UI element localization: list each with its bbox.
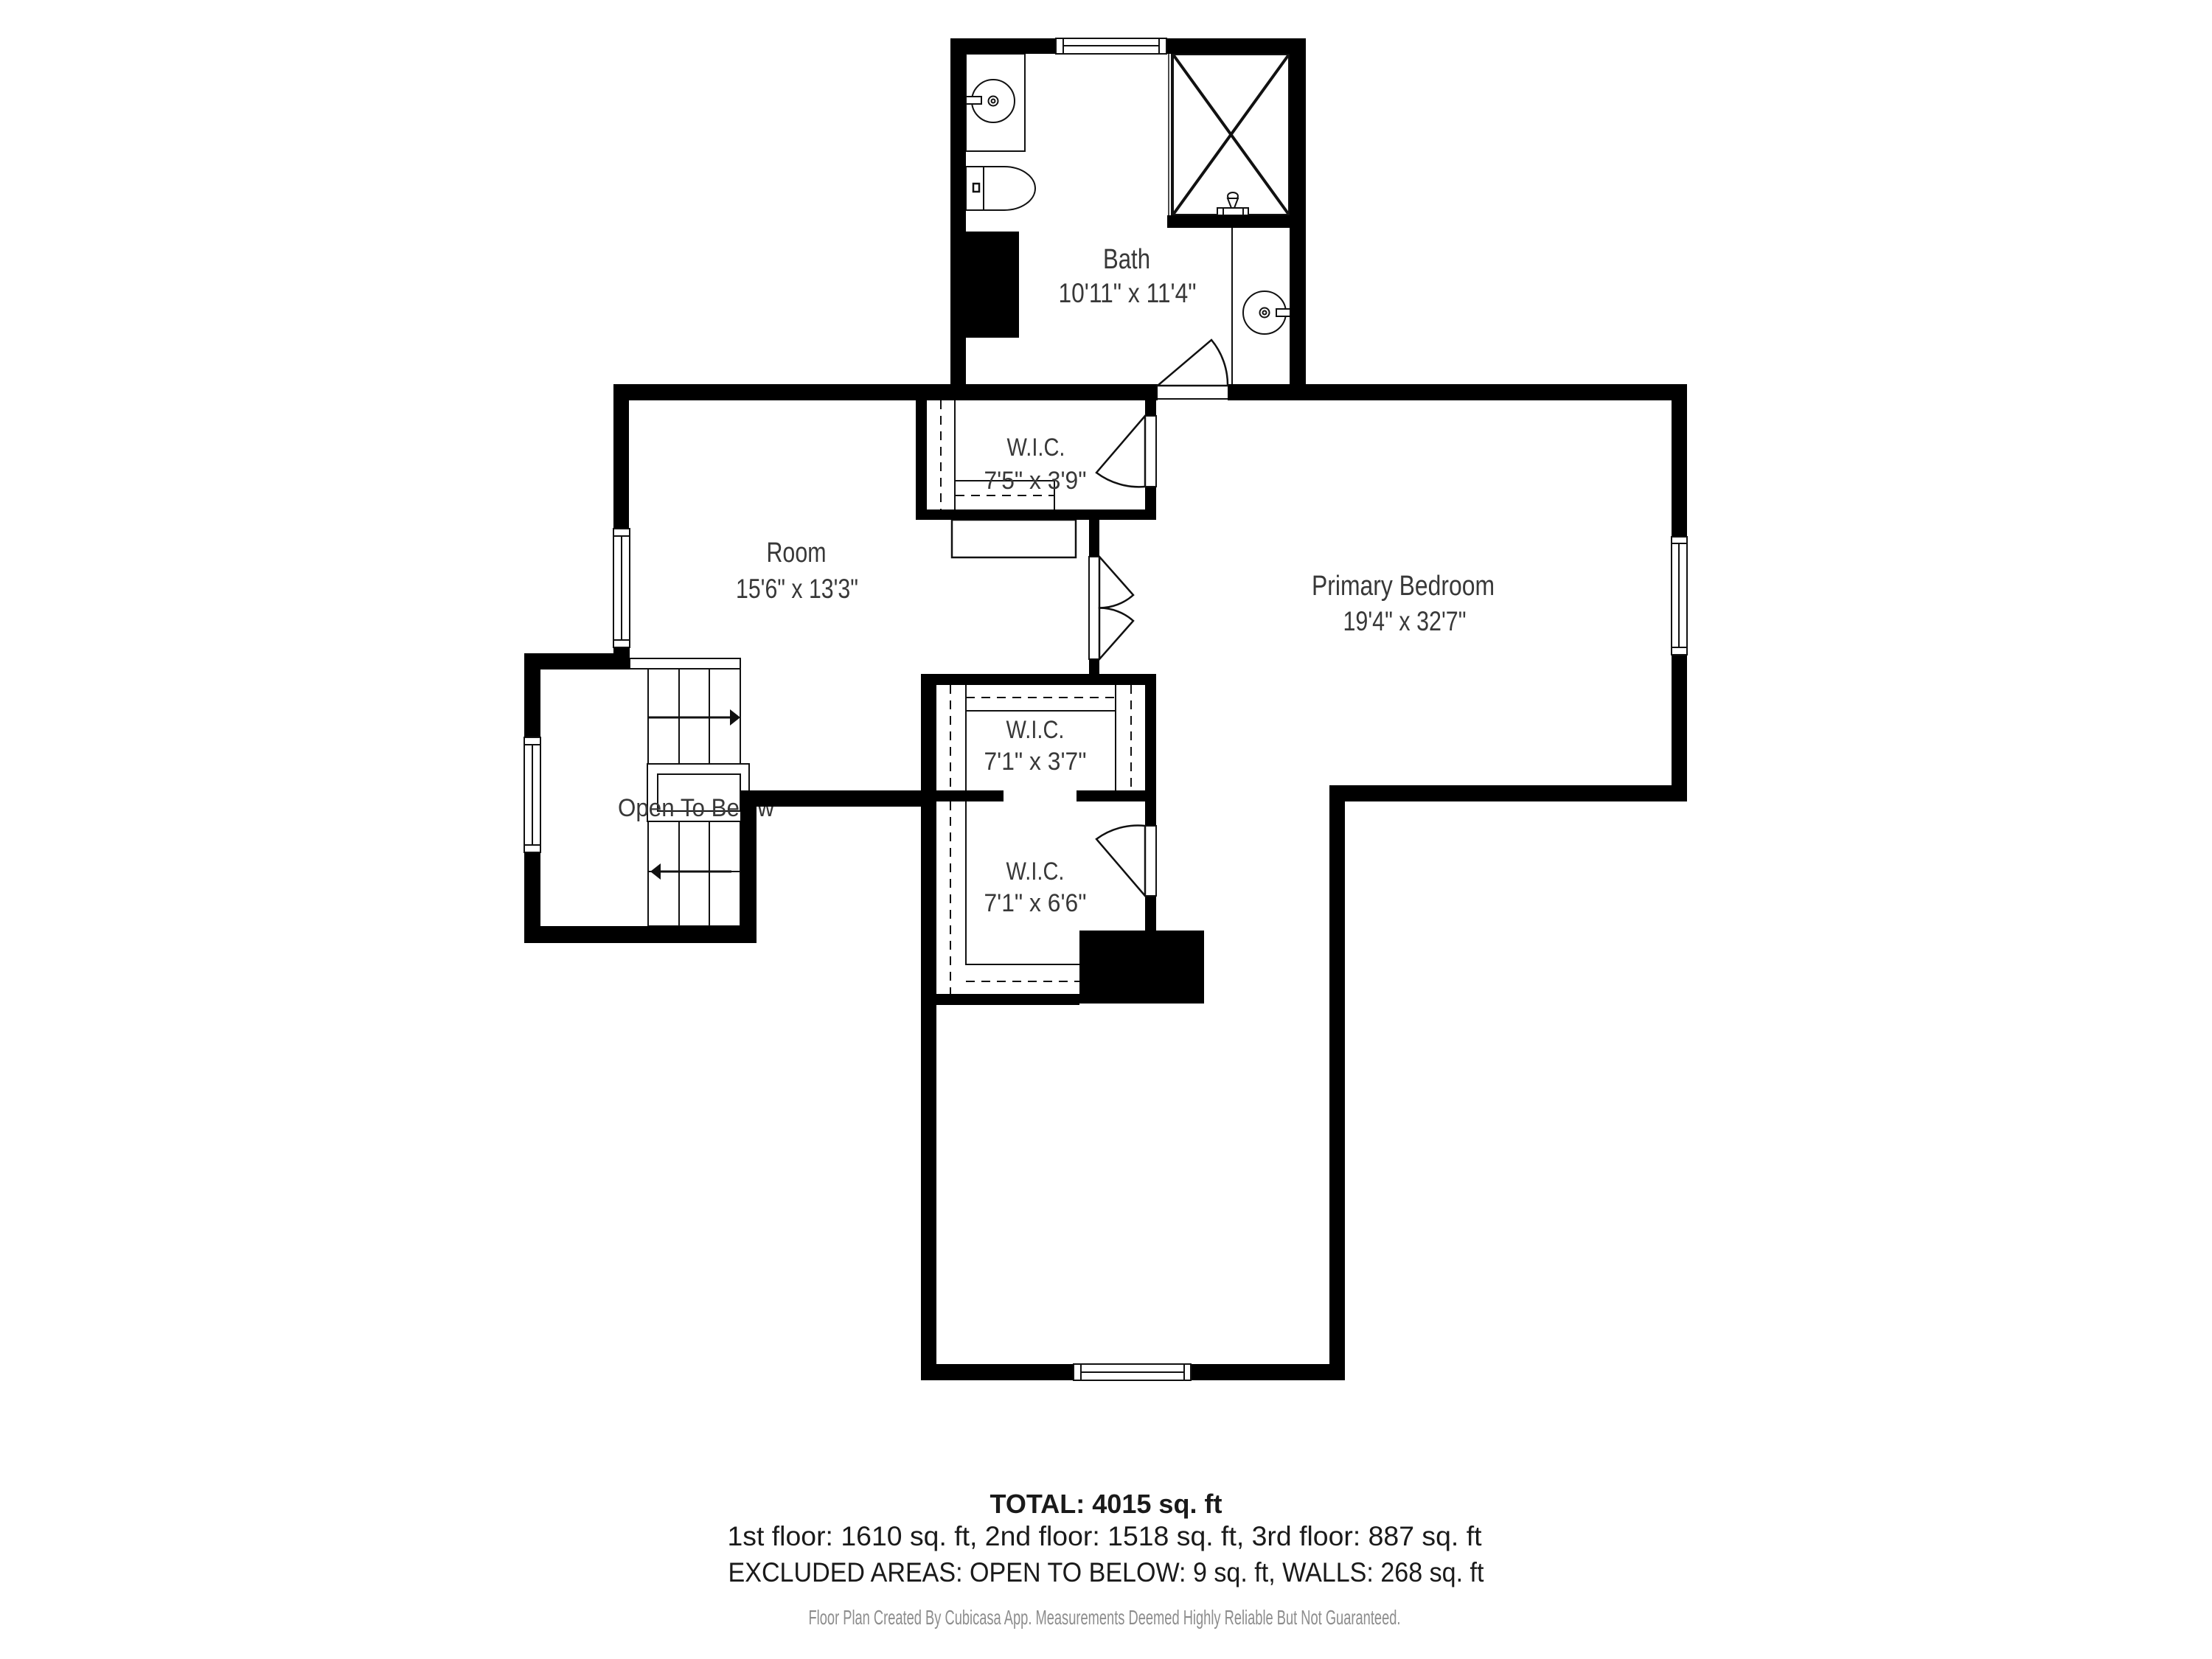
- svg-text:Bath: Bath: [1103, 244, 1150, 275]
- svg-text:EXCLUDED AREAS: OPEN TO BELOW:: EXCLUDED AREAS: OPEN TO BELOW: 9 sq. ft,…: [728, 1557, 1485, 1587]
- svg-text:7'1" x 6'6": 7'1" x 6'6": [984, 889, 1087, 917]
- svg-text:Primary Bedroom: Primary Bedroom: [1312, 571, 1495, 602]
- svg-text:Room: Room: [767, 538, 827, 568]
- svg-text:W.I.C.: W.I.C.: [1007, 434, 1065, 462]
- svg-text:1st floor: 1610 sq. ft, 2nd fl: 1st floor: 1610 sq. ft, 2nd floor: 1518 …: [728, 1521, 1483, 1551]
- svg-text:W.I.C.: W.I.C.: [1006, 716, 1065, 744]
- svg-text:15'6" x 13'3": 15'6" x 13'3": [736, 574, 858, 604]
- svg-text:7'5" x 3'9": 7'5" x 3'9": [984, 467, 1087, 495]
- svg-text:10'11" x 11'4": 10'11" x 11'4": [1059, 278, 1197, 308]
- svg-text:TOTAL: 4015 sq. ft: TOTAL: 4015 sq. ft: [990, 1489, 1222, 1519]
- svg-text:19'4" x 32'7": 19'4" x 32'7": [1343, 606, 1467, 636]
- svg-text:7'1" x 3'7": 7'1" x 3'7": [984, 748, 1087, 776]
- svg-text:Floor Plan Created By Cubicasa: Floor Plan Created By Cubicasa App. Meas…: [809, 1606, 1401, 1629]
- svg-text:W.I.C.: W.I.C.: [1006, 858, 1065, 886]
